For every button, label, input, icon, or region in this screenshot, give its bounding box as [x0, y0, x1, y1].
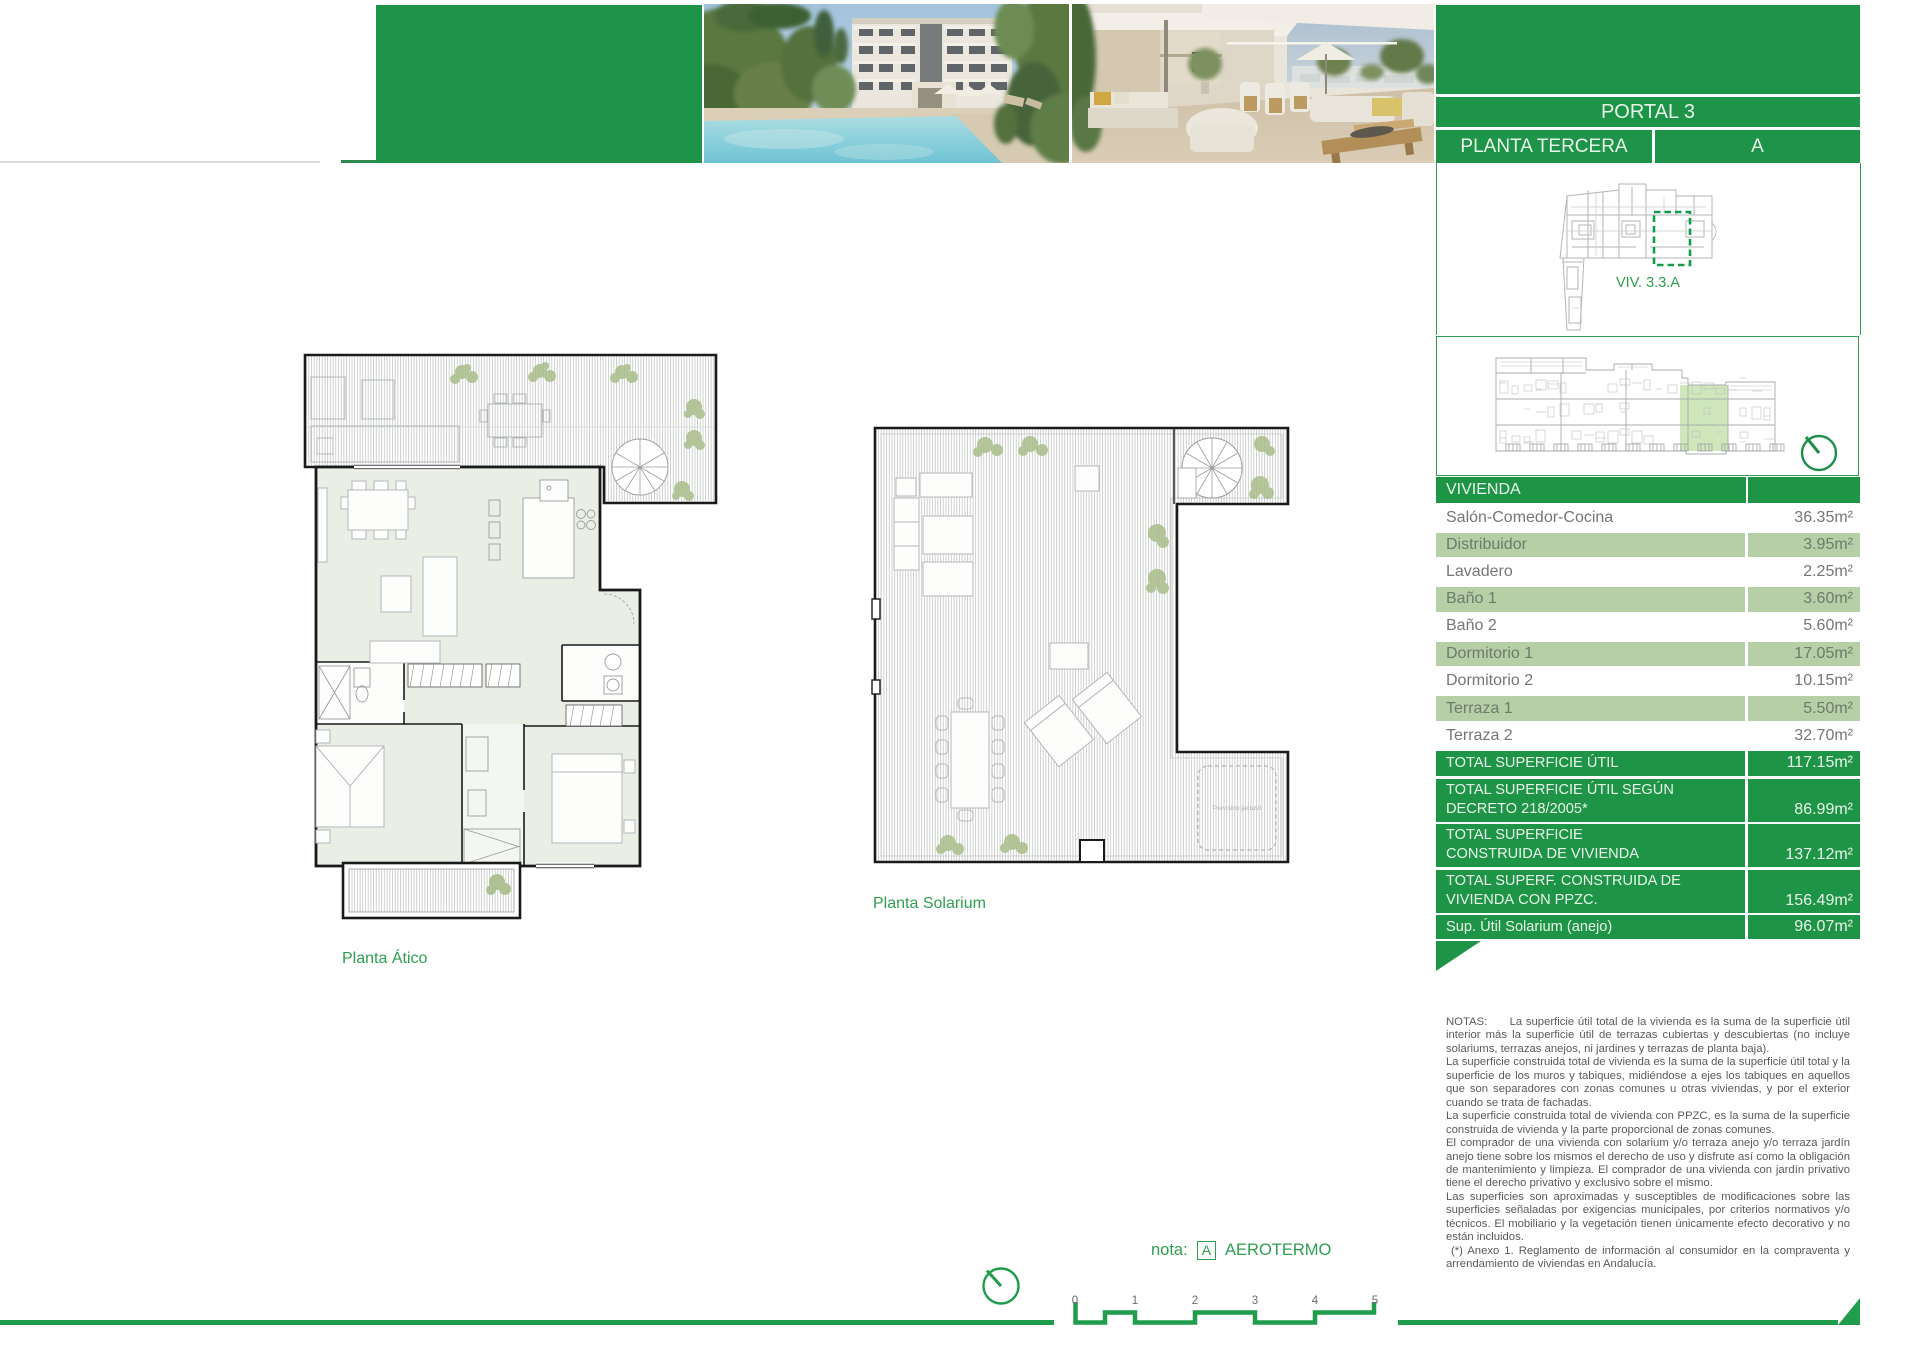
svg-text:0: 0 [1072, 1295, 1078, 1307]
svg-text:1: 1 [1132, 1295, 1138, 1307]
svg-text:5: 5 [1372, 1295, 1378, 1307]
svg-text:2: 2 [1192, 1295, 1198, 1307]
svg-text:Previsión jacuzzi: Previsión jacuzzi [1213, 805, 1261, 812]
svg-text:4: 4 [1312, 1295, 1319, 1307]
svg-text:3: 3 [1252, 1295, 1258, 1307]
